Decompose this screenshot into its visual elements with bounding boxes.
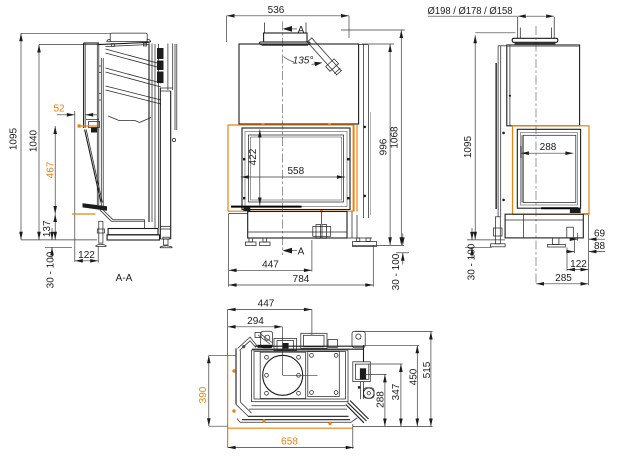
svg-text:558: 558	[287, 166, 304, 177]
svg-text:996: 996	[378, 138, 389, 155]
svg-text:288: 288	[376, 391, 387, 408]
svg-text:135°: 135°	[293, 56, 314, 67]
svg-text:467: 467	[46, 161, 57, 178]
svg-text:1040: 1040	[29, 129, 40, 152]
svg-text:285: 285	[555, 273, 572, 284]
svg-text:122: 122	[78, 250, 95, 261]
svg-text:69: 69	[594, 228, 606, 239]
svg-text:658: 658	[281, 437, 298, 448]
svg-text:1095: 1095	[463, 135, 474, 158]
svg-text:447: 447	[262, 259, 279, 270]
svg-text:536: 536	[268, 5, 285, 16]
svg-text:88: 88	[594, 241, 606, 252]
svg-text:122: 122	[570, 259, 587, 270]
svg-text:Ø198 / Ø178 / Ø158: Ø198 / Ø178 / Ø158	[428, 6, 513, 17]
svg-text:137: 137	[42, 220, 53, 237]
svg-text:A-A: A-A	[116, 273, 133, 284]
svg-text:A: A	[298, 25, 305, 36]
svg-text:30 - 100: 30 - 100	[46, 251, 57, 288]
svg-text:30 - 100: 30 - 100	[467, 243, 478, 280]
svg-text:450: 450	[409, 368, 420, 385]
svg-text:1095: 1095	[9, 127, 20, 150]
svg-text:390: 390	[198, 386, 209, 403]
svg-text:447: 447	[258, 299, 275, 310]
svg-text:30 - 100: 30 - 100	[391, 253, 402, 290]
svg-text:347: 347	[391, 383, 402, 400]
svg-text:294: 294	[247, 316, 264, 327]
svg-text:52: 52	[53, 104, 65, 115]
svg-text:422: 422	[248, 148, 259, 165]
svg-text:784: 784	[293, 274, 310, 285]
svg-text:1068: 1068	[389, 126, 400, 149]
svg-text:515: 515	[422, 361, 433, 378]
svg-text:A: A	[298, 247, 305, 258]
svg-text:288: 288	[540, 142, 557, 153]
